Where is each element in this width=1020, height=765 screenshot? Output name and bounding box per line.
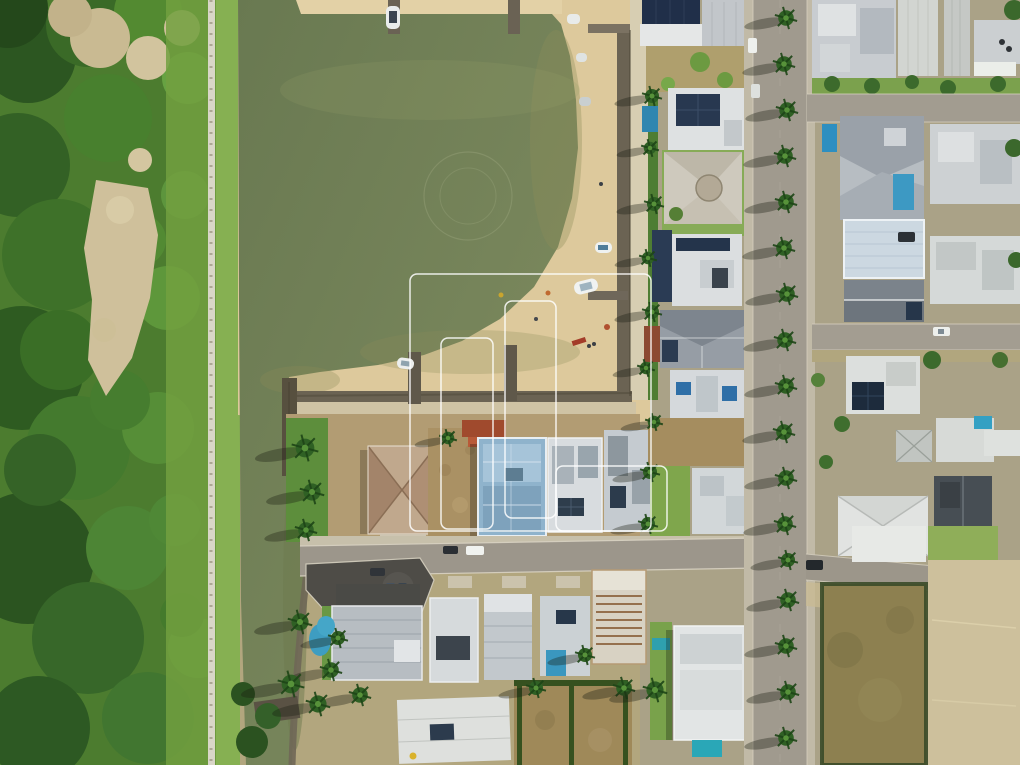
palm-crown (784, 291, 790, 297)
photo-shape (680, 634, 742, 664)
palm-crown (781, 245, 787, 251)
photo-shape (923, 351, 941, 369)
jetty (508, 0, 520, 34)
car (806, 560, 823, 570)
solar-panels (556, 610, 576, 624)
photo-shape (448, 576, 472, 588)
person (546, 291, 551, 296)
photo-shape (578, 446, 598, 478)
palm-crown (783, 15, 789, 21)
vacant-lot (928, 560, 1020, 765)
photo-shape (452, 497, 468, 513)
photo-shape (296, 0, 562, 14)
scene-svg (0, 0, 1020, 765)
photo-shape (820, 44, 850, 72)
person (599, 182, 603, 186)
palm-crown (649, 93, 654, 98)
palm-crown (652, 420, 656, 424)
house (974, 20, 1020, 64)
house (944, 0, 970, 76)
car (751, 84, 760, 98)
palm-crown (357, 692, 363, 698)
beach-umbrella (604, 324, 610, 330)
side-street (812, 324, 1020, 350)
photo-shape (389, 11, 397, 23)
photo-shape (4, 434, 76, 506)
photo-shape (128, 148, 152, 172)
palm-crown (781, 61, 787, 67)
palm-crown (582, 652, 587, 657)
pool (893, 174, 914, 210)
photo-shape (834, 416, 850, 432)
palm-crown (782, 337, 788, 343)
photo-shape (280, 60, 580, 120)
photo-shape (974, 62, 1016, 76)
jetty (504, 345, 517, 401)
palm-crown (335, 635, 340, 640)
photo-shape (569, 684, 574, 765)
photo-shape (905, 75, 919, 89)
house (640, 24, 702, 46)
palm-crown (645, 521, 650, 526)
photo-shape (216, 0, 240, 765)
solar-panels (676, 238, 730, 251)
photo-shape (502, 576, 526, 588)
photo-shape (724, 120, 742, 146)
palm-crown (783, 735, 789, 741)
palm-crown (533, 685, 538, 690)
palm-crown (315, 701, 321, 707)
person (499, 293, 504, 298)
photo-shape (819, 455, 833, 469)
palm-crown (783, 643, 789, 649)
photo-shape (556, 576, 580, 588)
photo-shape (696, 376, 718, 412)
photo-shape (726, 496, 746, 526)
photo-shape (317, 616, 335, 636)
photo-shape (700, 476, 724, 496)
photo-shape (938, 132, 974, 162)
photo-shape (864, 78, 880, 94)
photo-shape (928, 526, 998, 562)
photo-shape (484, 594, 532, 612)
red-roof-shed (462, 420, 506, 437)
photo-shape (394, 640, 420, 662)
solar-panels (906, 302, 922, 320)
photo-shape (535, 710, 555, 730)
photo-shape (940, 482, 960, 508)
vacant-lot (648, 418, 746, 466)
boat (579, 97, 591, 106)
palm-crown (652, 687, 658, 693)
photo-shape (588, 24, 630, 33)
palm-crown (621, 685, 627, 691)
palm-crown (648, 146, 652, 150)
photo-shape (827, 632, 863, 668)
red-roof-shed (644, 326, 662, 362)
photo-shape (717, 72, 733, 88)
palm-crown (302, 445, 309, 452)
photo-shape (990, 76, 1006, 92)
photo-shape (666, 630, 674, 740)
photo-shape (938, 329, 944, 334)
photo-shape (260, 366, 340, 394)
palm-crown (651, 201, 656, 206)
photo-shape (592, 570, 646, 590)
pool (974, 416, 992, 429)
palm-crown (781, 429, 787, 435)
car (370, 568, 385, 576)
boat (567, 14, 580, 24)
photo-shape (858, 678, 902, 722)
photo-shape (860, 8, 894, 54)
jetty (588, 291, 628, 300)
photo-shape (598, 245, 608, 250)
pool (692, 740, 722, 757)
solar-panels (676, 382, 691, 395)
photo-shape (936, 242, 976, 270)
palm-crown (782, 521, 788, 527)
palm-crown (785, 557, 790, 562)
photo-shape (336, 584, 420, 608)
car (443, 546, 458, 554)
photo-shape (360, 330, 580, 374)
photo-shape (470, 444, 478, 536)
photo-shape (588, 728, 612, 752)
palm-crown (784, 107, 790, 113)
photo-shape (824, 76, 840, 92)
photo-shape (410, 753, 417, 760)
person (592, 342, 596, 346)
palm-crown (646, 256, 650, 260)
photo-shape (680, 670, 742, 710)
photo-shape (126, 36, 170, 80)
person (587, 344, 591, 348)
photo-shape (530, 30, 582, 250)
photo-shape (236, 726, 268, 758)
house (984, 430, 1020, 456)
photo-shape (608, 436, 628, 476)
boat (576, 53, 587, 62)
solar-panels (642, 0, 700, 24)
person (534, 317, 538, 321)
seawall-path (284, 402, 636, 415)
car (748, 38, 757, 53)
photo-shape (106, 196, 134, 224)
palm-crown (785, 689, 791, 695)
photo-shape (992, 352, 1008, 368)
palm-crown (783, 475, 789, 481)
solar-panels (722, 386, 737, 401)
palm-crown (288, 681, 295, 688)
solar-panels (662, 340, 678, 362)
house (652, 230, 672, 302)
photo-shape (844, 280, 924, 300)
scene-layer (0, 0, 1020, 765)
house (844, 220, 924, 278)
photo-shape (92, 318, 116, 342)
palm-crown (644, 366, 648, 370)
photo-shape (884, 128, 906, 146)
palm-crown (328, 667, 334, 673)
photo-shape (436, 636, 470, 660)
photo-shape (690, 52, 710, 72)
palm-crown (297, 619, 303, 625)
house (702, 0, 748, 54)
photo-shape (886, 606, 914, 634)
palm-crown (446, 436, 450, 440)
photo-shape (505, 468, 523, 481)
palm-crown (303, 527, 309, 533)
pool (822, 124, 837, 152)
palm-crown (649, 309, 654, 314)
house (852, 526, 926, 562)
solar-panels (610, 486, 626, 508)
palm-crown (309, 489, 315, 495)
pool (642, 106, 658, 132)
palm-crown (783, 199, 789, 205)
photo-shape (20, 310, 100, 390)
photo-shape (999, 39, 1005, 45)
palm-crown (647, 469, 652, 474)
car (466, 546, 484, 555)
photo-shape (811, 373, 825, 387)
photo-shape (669, 207, 683, 221)
photo-shape (1006, 46, 1012, 52)
aerial-photo-waterfront-estate (0, 0, 1020, 765)
palm-crown (785, 597, 791, 603)
car (898, 232, 915, 242)
photo-shape (886, 362, 916, 386)
palm-crown (783, 383, 789, 389)
solar-panels (430, 724, 455, 741)
palm-crown (782, 153, 788, 159)
photo-shape (712, 268, 728, 288)
photo-shape (818, 4, 856, 36)
